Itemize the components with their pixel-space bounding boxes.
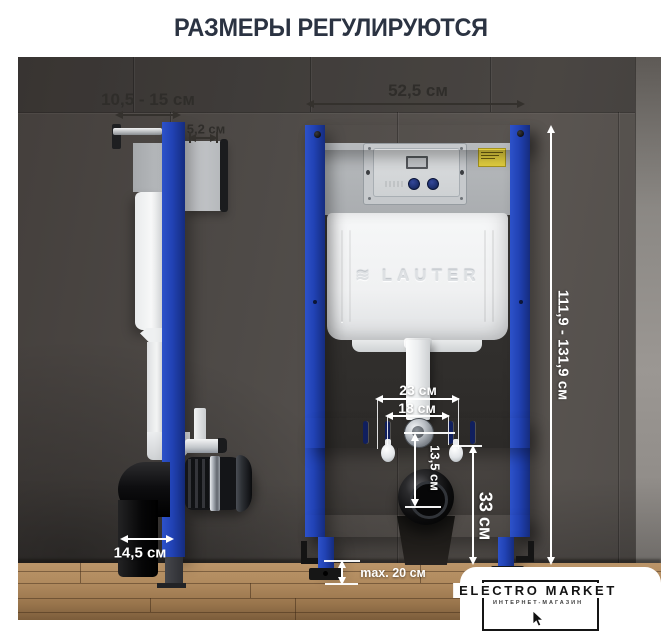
fitting-chrome-band [210, 456, 220, 511]
cistern-groove [349, 230, 351, 322]
anchor-rod [113, 128, 162, 135]
dim-tick [325, 583, 358, 585]
panel-pushrod-hole [408, 178, 420, 190]
brand-text: LAUTER [382, 266, 481, 286]
dim-outlet-height: 33 см [475, 492, 496, 540]
frame-left-rail [305, 125, 325, 537]
dim-wall-offset: 10,5 - 15 см [101, 90, 195, 110]
dim-foot-adjust: max. 20 см [360, 566, 426, 580]
dim-arrow [190, 137, 216, 139]
dim-arrow [117, 114, 179, 116]
frame-right-leg [498, 537, 514, 566]
panel-clip [460, 170, 464, 175]
plank-joint [150, 598, 151, 612]
fitting-end-ring [236, 455, 252, 512]
frame-bolt [314, 131, 321, 138]
wave-icon: ≋ [355, 266, 374, 286]
panel-screw [368, 197, 371, 200]
dim-arrow [414, 435, 416, 505]
fixing-stud [381, 444, 395, 462]
panel-display [406, 156, 428, 169]
cistern-groove [484, 230, 486, 322]
cistern-brand-emboss: ≋LAUTER [355, 266, 480, 286]
dim-extension [448, 415, 449, 445]
dim-tick [452, 445, 482, 447]
frame-top-bar [305, 125, 530, 150]
wall-bracket [516, 556, 534, 562]
header: РАЗМЕРЫ РЕГУЛИРУЮТСЯ [0, 0, 661, 57]
side-cistern-top [133, 143, 162, 192]
panel-pushrod-hole [427, 178, 439, 190]
dim-frame-height: 111,9 - 131,9 см [555, 290, 572, 400]
side-plate-edge [220, 139, 228, 212]
dim-outlet-drop: 13,5 см [428, 445, 443, 491]
dim-arrow [550, 127, 552, 563]
photo-scene: ≋LAUTER [18, 57, 661, 620]
dim-arrow [341, 562, 343, 583]
rail-hole [519, 300, 523, 304]
dim-extension [377, 398, 378, 449]
crossbar-slot [470, 421, 475, 444]
cistern-groove [341, 230, 343, 322]
dim-frame-width: 52,5 см [388, 81, 448, 101]
panel-clip [366, 170, 370, 175]
page-title: РАЗМЕРЫ РЕГУЛИРУЮТСЯ [174, 14, 488, 43]
dim-stud-inner: 18 см [398, 400, 436, 416]
side-foot-plate [157, 583, 186, 588]
sticker-line [481, 155, 499, 156]
panel-markings [385, 181, 405, 187]
fitting-ribs [188, 459, 210, 508]
dim-extension [387, 415, 388, 445]
side-protect-plate [185, 141, 224, 211]
watermark-logo: ELECTRO MARKET ИНТЕРНЕТ-МАГАЗИН [460, 567, 661, 640]
dim-extension [458, 398, 459, 449]
sticker-line [481, 158, 495, 159]
frame-right-rail [510, 125, 530, 537]
logo-tagline: ИНТЕРНЕТ-МАГАЗИН [490, 600, 586, 606]
plank-joint [250, 583, 251, 598]
dim-tick [216, 132, 218, 143]
dim-arrow [387, 415, 448, 417]
dim-arrow [122, 538, 172, 540]
cursor-icon [532, 610, 545, 627]
dim-stud-outer: 23 см [399, 382, 437, 398]
plank-joint [295, 598, 296, 620]
dim-arrow [308, 103, 523, 105]
frame-left-leg [318, 537, 334, 570]
rail-hole [313, 300, 317, 304]
crossbar-slot [363, 421, 368, 444]
side-rail-foot [165, 557, 183, 585]
warning-sticker [478, 148, 506, 167]
side-cistern-body [135, 192, 162, 330]
dim-frame-depth: 14,5 см [114, 545, 167, 562]
sticker-line [481, 152, 503, 153]
product-image: РАЗМЕРЫ РЕГУЛИРУЮТСЯ [0, 0, 661, 640]
cistern-groove [492, 230, 494, 322]
side-connector-tip [218, 438, 227, 453]
frame-bolt [517, 130, 524, 137]
dim-tick [405, 506, 441, 508]
panel-screw [460, 197, 463, 200]
logo-title: ELECTRO MARKET [453, 583, 623, 598]
wall-bracket [301, 558, 318, 564]
foot-bolt [323, 571, 328, 576]
dim-tick [189, 132, 191, 143]
plank-joint [80, 563, 81, 583]
